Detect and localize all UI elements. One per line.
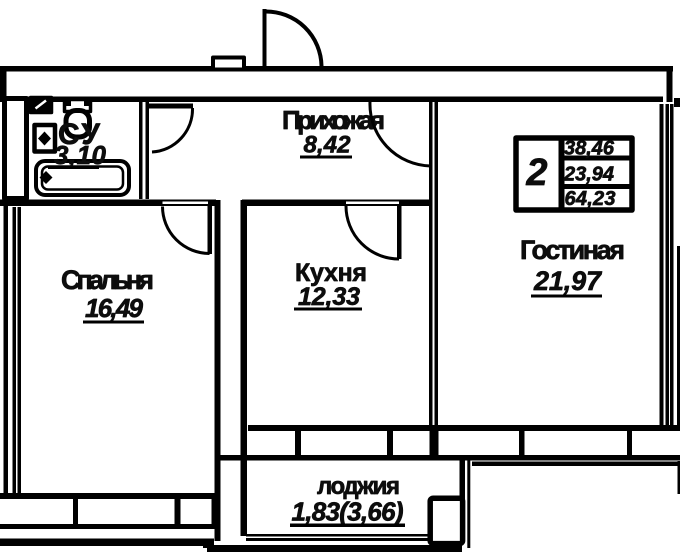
svg-text:16,49: 16,49 [85,293,144,323]
svg-text:2: 2 [525,152,547,194]
svg-text:Гостиная: Гостиная [520,235,625,265]
svg-text:23,94: 23,94 [563,164,614,186]
svg-text:3,10: 3,10 [54,140,107,170]
svg-text:Спальня: Спальня [61,265,154,295]
svg-text:1,83(3,66): 1,83(3,66) [292,497,404,527]
svg-text:38,46: 38,46 [564,138,615,160]
svg-text:64,23: 64,23 [565,188,616,210]
svg-text:21,97: 21,97 [533,266,603,296]
svg-text:12,33: 12,33 [298,283,360,311]
svg-text:8,42: 8,42 [304,132,352,159]
